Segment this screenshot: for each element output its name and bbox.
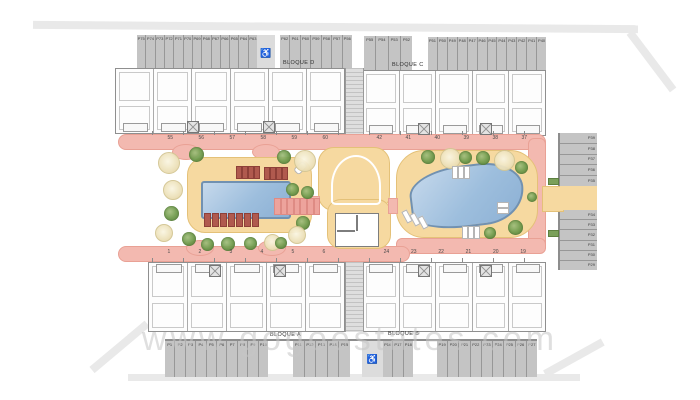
parking-space-label: P67 [212, 37, 220, 41]
unit-number: 40 [435, 136, 441, 141]
parking-space: P10 [258, 341, 268, 377]
tree-cream-icon [288, 226, 306, 244]
parking-space: P62 [280, 35, 289, 72]
parking-space-label: P7 [227, 343, 236, 347]
apartment-unit [306, 263, 344, 331]
building-bottom_left [148, 262, 345, 332]
parking-space-label: P41 [527, 39, 536, 43]
parking-space: P65 [229, 35, 238, 72]
parking-space: P6 [216, 341, 226, 377]
tree-green-icon [508, 220, 523, 235]
parking-space: P1 [165, 341, 174, 377]
parking-space: P8 [237, 341, 247, 377]
paving-tile [281, 198, 288, 215]
parking-space: P32 [560, 229, 597, 239]
parking-space: P46 [477, 37, 487, 72]
parking-space: P34 [560, 210, 597, 219]
parking-space-label: P26 [516, 343, 526, 347]
parking-space: P30 [560, 250, 597, 260]
parking-space: P58 [321, 35, 331, 72]
unit-number: 37 [522, 136, 528, 141]
apartment-unit [436, 263, 473, 331]
parking-group-top4: P51P50P49P48P47P46P45P44P43P42P41P40 [428, 37, 546, 72]
stair-core [418, 123, 430, 135]
unit-number: 58 [261, 136, 267, 141]
parking-space-label: P43 [507, 39, 516, 43]
parking-space-label: P12 [305, 343, 316, 347]
unit-number: 6 [323, 250, 326, 255]
parking-space: P63 [248, 35, 257, 72]
parking-space-label: P71 [174, 37, 182, 41]
unit-number: 23 [411, 250, 417, 255]
parking-space-label: P53 [389, 38, 400, 42]
parking-space: P72 [164, 35, 173, 72]
parking-space-label: P37 [588, 157, 595, 161]
apartment-unit [363, 71, 400, 135]
parking-space-label: P51 [428, 39, 437, 43]
tree-cream-icon [155, 224, 173, 242]
parking-space: P70 [183, 35, 192, 72]
paving-tile [307, 198, 314, 215]
parking-space: P54 [375, 36, 387, 72]
parking-space-label: P48 [458, 39, 467, 43]
unit-number: 41 [406, 136, 412, 141]
tree-cream-icon [163, 180, 183, 200]
unit-balcony [313, 264, 339, 273]
parking-space-label: P61 [290, 37, 299, 41]
parking-space-label: P3 [186, 343, 195, 347]
unit-room [439, 74, 469, 103]
pool-house-wall [337, 230, 355, 232]
parking-space-label: P5 [207, 343, 216, 347]
block-label-bloque-a: BLOQUE A [270, 332, 301, 338]
stair-core [209, 265, 221, 277]
parking-space-label: P46 [478, 39, 487, 43]
parking-space: P59 [310, 35, 320, 72]
hedge [548, 178, 559, 185]
unit-room [403, 303, 433, 328]
boundary-bottom-left-diagonal [89, 321, 149, 373]
parking-group-bottom2: P11P12P13P14P15 [293, 341, 350, 377]
unit-number: 20 [493, 250, 499, 255]
tree-green-icon [527, 192, 537, 202]
parking-space-label: P20 [448, 343, 458, 347]
unit-room [195, 72, 226, 101]
parking-space-label: P11 [293, 343, 304, 347]
parking-space-label: P39 [588, 136, 595, 140]
paving-tile [287, 198, 294, 215]
parking-space-label: P63 [249, 37, 257, 41]
parking-space: P40 [536, 37, 546, 72]
parking-space-label: P14 [328, 343, 339, 347]
tree-cream-icon [494, 150, 515, 171]
parking-space-label: P31 [588, 243, 595, 247]
unit-number: 22 [438, 250, 444, 255]
unit-number: 56 [199, 136, 205, 141]
tree-green-icon [182, 232, 196, 246]
unit-room [476, 74, 506, 103]
unit-balcony [123, 123, 148, 132]
paving-tile [300, 198, 307, 215]
sun-lounger [474, 226, 480, 239]
parking-space: P19 [437, 341, 447, 377]
tree-green-icon [189, 147, 204, 162]
parking-space-label: P35 [588, 179, 595, 183]
parking-space-label: P68 [202, 37, 210, 41]
connector-center-right [388, 198, 398, 214]
sun-lounger [252, 213, 259, 227]
parking-space-label: P49 [448, 39, 457, 43]
parking-space-label: P30 [588, 253, 595, 257]
parking-space: P24 [492, 341, 503, 377]
unit-room [366, 74, 396, 103]
parking-space-label: P1 [165, 343, 174, 347]
stair-corridor-top [345, 68, 364, 134]
parking-space: P20 [447, 341, 458, 377]
parking-space: P66 [220, 35, 229, 72]
parking-group-rightA: P39P38P37P36P35 [560, 133, 597, 186]
apartment-unit [227, 263, 266, 331]
parking-space: P25 [503, 341, 514, 377]
parking-space: P49 [447, 37, 457, 72]
parking-space-label: P58 [322, 37, 331, 41]
tree-green-icon [515, 161, 528, 174]
parking-space-label: P65 [230, 37, 238, 41]
pool-house-wall [356, 215, 358, 231]
parking-space-label: P55 [364, 38, 375, 42]
tree-green-icon [301, 186, 314, 199]
parking-space: P56 [342, 35, 352, 72]
parking-space-label: P50 [438, 39, 447, 43]
parking-space-label: P52 [401, 38, 412, 42]
parking-space-label: P23 [482, 343, 492, 347]
unit-room [512, 303, 542, 328]
parking-space: P31 [560, 240, 597, 250]
sun-lounger [254, 166, 260, 179]
paving-tile [314, 198, 321, 215]
parking-space-label: P18 [404, 343, 413, 347]
parking-space-label: P38 [588, 147, 595, 151]
handicap-parking-icon: ♿ [257, 35, 275, 72]
paving-tile [294, 198, 301, 215]
boundary-top [33, 21, 638, 33]
parking-space-label: P32 [588, 233, 595, 237]
unit-room [310, 72, 341, 101]
parking-space-label: P45 [488, 39, 497, 43]
unit-balcony [443, 264, 467, 273]
parking-space: P35 [560, 175, 597, 186]
parking-space-label: P25 [504, 343, 514, 347]
stair-core [418, 265, 430, 277]
parking-space-label: P9 [248, 343, 257, 347]
apartment-unit [116, 69, 154, 133]
parking-space-label: P47 [468, 39, 477, 43]
parking-space-label: P70 [184, 37, 192, 41]
parking-space-label: P4 [196, 343, 205, 347]
parking-space-label: P24 [493, 343, 503, 347]
stair-core [263, 121, 275, 133]
sun-lounger [244, 213, 251, 227]
apartment-unit [509, 71, 545, 135]
unit-balcony [234, 264, 260, 273]
unit-balcony [156, 264, 182, 273]
right-entry-gap [560, 186, 597, 210]
boundary-top-right-diagonal [627, 30, 677, 92]
parking-space: P60 [300, 35, 310, 72]
site-plan-canvas: P75P74P73P72P71P70P69P68P67P66P65P64P63P… [0, 0, 700, 400]
boundary-bottom-right-diagonal [543, 339, 605, 378]
parking-space: P13 [315, 341, 327, 377]
unit-room [272, 72, 303, 101]
block-label-bloque-c: BLOQUE C [392, 62, 424, 68]
parking-space-label: P40 [537, 39, 546, 43]
parking-space-label: P15 [339, 343, 350, 347]
parking-space: P48 [457, 37, 467, 72]
parking-space: P16 [383, 341, 392, 377]
parking-space-label: P36 [588, 168, 595, 172]
parking-space: P4 [195, 341, 205, 377]
unit-room [119, 72, 150, 101]
parking-group-rightB: P34P33P32P31P30P29 [560, 210, 597, 270]
parking-space-label: P19 [437, 343, 447, 347]
unit-room [476, 303, 506, 328]
parking-space: P23 [481, 341, 492, 377]
parking-space-label: P42 [517, 39, 526, 43]
parking-space: P55 [364, 36, 375, 72]
stair-core [480, 123, 492, 135]
parking-space: P9 [247, 341, 257, 377]
building-bottom_right [362, 262, 546, 332]
unit-balcony [516, 264, 540, 273]
parking-space: P36 [560, 164, 597, 175]
parking-space: P27 [526, 341, 537, 377]
apartment-unit [436, 71, 473, 135]
unit-number: 1 [168, 250, 171, 255]
stair-corridor-bottom [345, 262, 364, 332]
parking-space: P68 [201, 35, 210, 72]
sun-lounger [212, 213, 219, 227]
tree-green-icon [459, 151, 472, 164]
sun-lounger [464, 166, 470, 179]
parking-space-label: P62 [280, 37, 289, 41]
parking-space-label: P6 [217, 343, 226, 347]
parking-space: P71 [173, 35, 182, 72]
unit-balcony [369, 264, 393, 273]
parking-space-label: P8 [238, 343, 247, 347]
unit-number: 4 [261, 250, 264, 255]
unit-number: 21 [466, 250, 472, 255]
parking-space-label: P44 [497, 39, 506, 43]
unit-number: 60 [323, 136, 329, 141]
parking-space-label: P29 [588, 263, 595, 267]
unit-room [191, 303, 223, 328]
sun-lounger [282, 167, 288, 180]
parking-space: P64 [238, 35, 247, 72]
unit-room [366, 303, 396, 328]
unit-number: 57 [230, 136, 236, 141]
unit-room [230, 303, 262, 328]
sun-lounger [228, 213, 235, 227]
building-top_left [115, 68, 345, 134]
unit-number: 59 [292, 136, 298, 141]
parking-space-label: P69 [193, 37, 201, 41]
parking-space: P21 [458, 341, 469, 377]
tree-green-icon [275, 237, 287, 249]
stair-core [187, 121, 199, 133]
parking-space: P22 [470, 341, 481, 377]
parking-space: P73 [155, 35, 164, 72]
parking-space-label: P75 [137, 37, 145, 41]
parking-space: P37 [560, 154, 597, 165]
tree-green-icon [277, 150, 291, 164]
parking-space: P74 [145, 35, 154, 72]
unit-room [403, 74, 433, 103]
sun-lounger [236, 213, 243, 227]
parking-space-label: P17 [393, 343, 402, 347]
unit-room [270, 303, 302, 328]
parking-space: P17 [392, 341, 402, 377]
sun-lounger [220, 213, 227, 227]
parking-space-label: P64 [239, 37, 247, 41]
parking-space: P44 [496, 37, 506, 72]
tree-cream-icon [294, 150, 316, 172]
unit-number: 5 [292, 250, 295, 255]
parking-space: P33 [560, 219, 597, 229]
unit-number: 39 [464, 136, 470, 141]
unit-room [152, 303, 184, 328]
parking-space-label: P72 [165, 37, 173, 41]
parking-space: P69 [192, 35, 201, 72]
walkway-ticks-bottom [152, 258, 547, 262]
parking-space-label: P66 [221, 37, 229, 41]
parking-space: P14 [327, 341, 339, 377]
tree-green-icon [484, 227, 496, 239]
parking-group-top1: P75P74P73P72P71P70P69P68P67P66P65P64P63 [137, 35, 257, 72]
parking-space-label: P56 [343, 37, 352, 41]
unit-room [439, 303, 469, 328]
parking-space: P45 [487, 37, 497, 72]
tree-green-icon [164, 206, 179, 221]
parking-space-label: P13 [316, 343, 327, 347]
paving-tile [274, 198, 281, 215]
unit-room [157, 72, 188, 101]
handicap-parking-icon: ♿ [362, 341, 383, 377]
unit-room [512, 74, 542, 103]
parking-space-label: P22 [471, 343, 481, 347]
parking-space: P41 [526, 37, 536, 72]
parking-space-label: P21 [459, 343, 469, 347]
parking-group-bottom4: P19P20P21P22P23P24P25P26P27 [437, 341, 537, 377]
parking-space: P38 [560, 143, 597, 154]
parking-space: P18 [403, 341, 413, 377]
parking-group-bottom3: P16P17P18 [383, 341, 413, 377]
parking-space: P61 [289, 35, 299, 72]
apartment-unit [363, 263, 400, 331]
parking-space: P42 [516, 37, 526, 72]
parking-space: P26 [515, 341, 526, 377]
parking-space: P75 [137, 35, 145, 72]
parking-space: P43 [506, 37, 516, 72]
parking-space: P39 [560, 133, 597, 143]
stair-core [274, 265, 286, 277]
block-label-bloque-d: BLOQUE D [283, 60, 315, 66]
parking-space: P67 [211, 35, 220, 72]
parking-space: P3 [185, 341, 195, 377]
apartment-unit [307, 69, 344, 133]
tree-cream-icon [158, 152, 180, 174]
parking-space: P50 [437, 37, 447, 72]
parking-space-label: P33 [588, 223, 595, 227]
parking-group-bottom1: P1P2P3P4P5P6P7P8P9P10 [165, 341, 268, 377]
hedge [548, 230, 559, 237]
parking-space-label: P59 [311, 37, 320, 41]
unit-number: 55 [168, 136, 174, 141]
parking-space-label: P57 [332, 37, 341, 41]
parking-space: P2 [174, 341, 184, 377]
sun-lounger [204, 213, 211, 227]
tree-green-icon [286, 183, 299, 196]
parking-space: P15 [338, 341, 350, 377]
unit-number: 24 [384, 250, 390, 255]
unit-number: 19 [520, 250, 526, 255]
parking-space: P11 [293, 341, 304, 377]
unit-room [234, 72, 265, 101]
sun-lounger [497, 208, 509, 214]
parking-space-label: P74 [146, 37, 154, 41]
apartment-unit [149, 263, 188, 331]
tree-green-icon [476, 151, 490, 165]
parking-space-label: P73 [156, 37, 164, 41]
parking-space: P12 [304, 341, 316, 377]
stair-core [480, 265, 492, 277]
tree-green-icon [201, 238, 214, 251]
parking-space-label: P60 [301, 37, 310, 41]
unit-number: 38 [493, 136, 499, 141]
tree-green-icon [244, 237, 257, 250]
tree-green-icon [221, 237, 235, 251]
parking-space-label: P16 [383, 343, 392, 347]
building-top_right [362, 70, 546, 136]
parking-space: P7 [226, 341, 236, 377]
unit-room [309, 303, 341, 328]
apartment-unit [509, 263, 545, 331]
parking-space-label: P34 [588, 213, 595, 217]
parking-space-label: P10 [259, 343, 268, 347]
block-label-bloque-b: BLOQUE B [388, 331, 419, 337]
parking-space: P57 [331, 35, 341, 72]
parking-space: P5 [206, 341, 216, 377]
unit-number: 42 [377, 136, 383, 141]
parking-space-label: P54 [376, 38, 387, 42]
tree-green-icon [421, 150, 435, 164]
unit-number: 3 [230, 250, 233, 255]
parking-space: P29 [560, 260, 597, 270]
parking-space-label: P2 [175, 343, 184, 347]
unit-number: 2 [199, 250, 202, 255]
parking-space: P47 [467, 37, 477, 72]
parking-space: P51 [428, 37, 437, 72]
parking-group-top2: P62P61P60P59P58P57P56 [280, 35, 352, 72]
parking-space-label: P27 [527, 343, 537, 347]
